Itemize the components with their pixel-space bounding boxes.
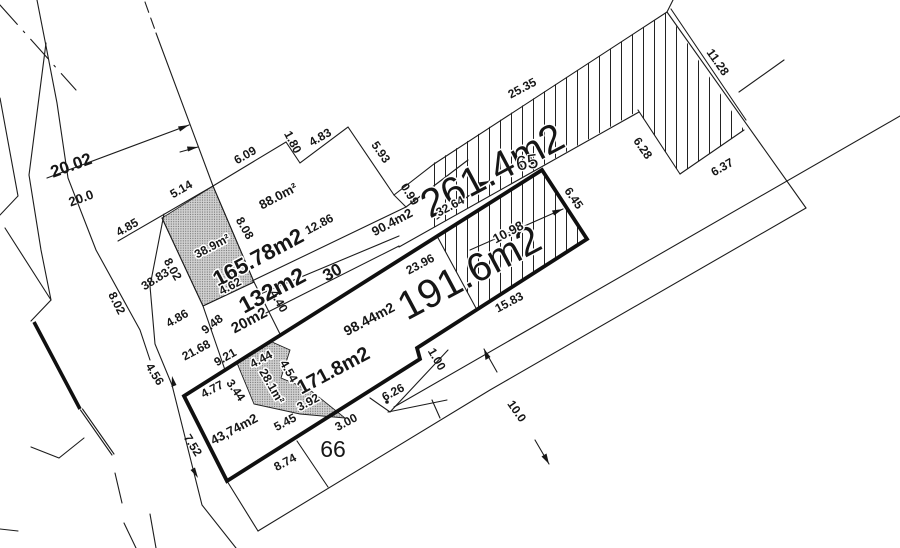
svg-text:65: 65	[515, 151, 540, 176]
svg-text:66: 66	[320, 436, 346, 462]
